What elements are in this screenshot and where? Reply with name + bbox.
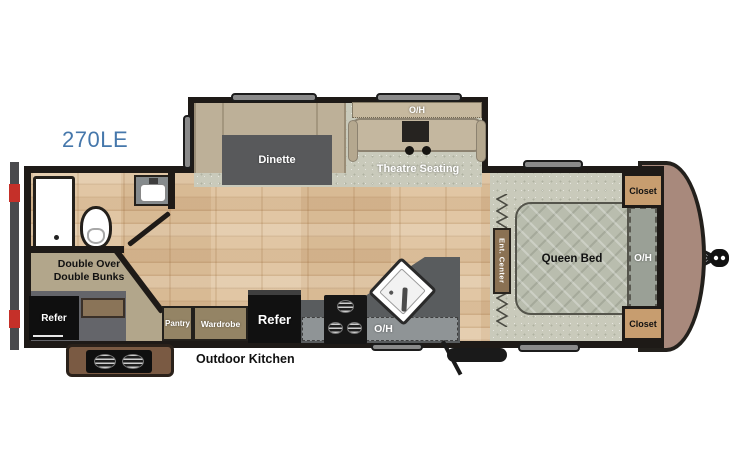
theatre-oh-label: O/H	[409, 105, 425, 115]
stove	[324, 295, 367, 344]
closet-label: Closet	[629, 319, 657, 329]
toilet	[80, 206, 112, 249]
stove-burner	[347, 322, 362, 334]
outdoor-kitchen-label: Outdoor Kitchen	[196, 352, 336, 366]
bunks-label-line2: Double Bunks	[32, 271, 146, 284]
dinette-table: Dinette	[222, 135, 332, 185]
grill-burner	[94, 354, 116, 369]
shower	[33, 176, 75, 250]
closet-label: Closet	[629, 186, 657, 196]
bathroom-sink	[134, 175, 172, 206]
closet-bottom: Closet	[622, 306, 664, 341]
toilet-seat	[87, 228, 105, 244]
bunks-label-line1: Double Over	[32, 258, 146, 271]
curtain-zigzag	[496, 194, 509, 228]
bedroom-oh-label: O/H	[634, 253, 652, 264]
stove-burner	[337, 300, 354, 313]
dinette-label: Dinette	[258, 154, 295, 166]
queen-bed-label: Queen Bed	[542, 253, 603, 265]
bedroom-overhead-cabinet: O/H	[629, 207, 657, 310]
rear-bumper-red-top	[9, 184, 20, 202]
bathroom-sink-basin	[140, 184, 166, 202]
window	[376, 93, 462, 102]
theatre-armrest-left	[348, 120, 358, 162]
theatre-overhead-cabinet: O/H	[352, 102, 482, 118]
model-number: 270LE	[62, 127, 128, 153]
window	[371, 343, 423, 351]
window	[183, 115, 192, 169]
theatre-armrest-right	[476, 120, 486, 162]
bathroom-wall	[24, 246, 124, 253]
theatre-console	[402, 121, 429, 142]
curtain-zigzag	[496, 293, 509, 327]
refer-outdoor-label: Refer	[41, 313, 67, 324]
rear-bumper-red-bottom	[9, 310, 20, 328]
refer-main-label: Refer	[258, 312, 291, 327]
grill-burner	[122, 354, 144, 369]
theatre-cupholder	[422, 146, 431, 155]
outdoor-kitchen-unit	[66, 344, 174, 377]
floorplan-270le: 270LE Dinette O/H Theatre Seating	[0, 0, 731, 469]
theatre-cupholder	[405, 146, 414, 155]
closet-top: Closet	[622, 173, 664, 208]
compartment-cabinet	[81, 298, 125, 318]
window	[518, 343, 580, 352]
refer-handle	[33, 335, 63, 337]
bunks-label: Double Over Double Bunks	[32, 258, 146, 284]
outdoor-refrigerator: Refer	[29, 296, 79, 340]
shower-drain	[54, 235, 59, 240]
wardrobe-cabinet: Wardrobe	[193, 306, 248, 341]
window	[231, 93, 317, 102]
theatre-seating-label: Theatre Seating	[348, 163, 488, 175]
entry-door-step	[447, 348, 507, 362]
bathroom-wall-stub	[168, 173, 175, 209]
pantry-cabinet: Pantry	[162, 306, 193, 341]
window	[523, 160, 583, 169]
pantry-label: Pantry	[165, 319, 190, 328]
wardrobe-label: Wardrobe	[201, 319, 240, 329]
ent-center-label: Ent. Center	[498, 238, 507, 284]
entertainment-center: Ent. Center	[493, 228, 511, 294]
queen-bed: Queen Bed	[515, 202, 629, 315]
refrigerator: Refer	[248, 290, 301, 343]
outdoor-kitchen-grill	[86, 350, 152, 373]
stove-burner	[328, 322, 343, 334]
bathroom-faucet	[149, 178, 158, 184]
